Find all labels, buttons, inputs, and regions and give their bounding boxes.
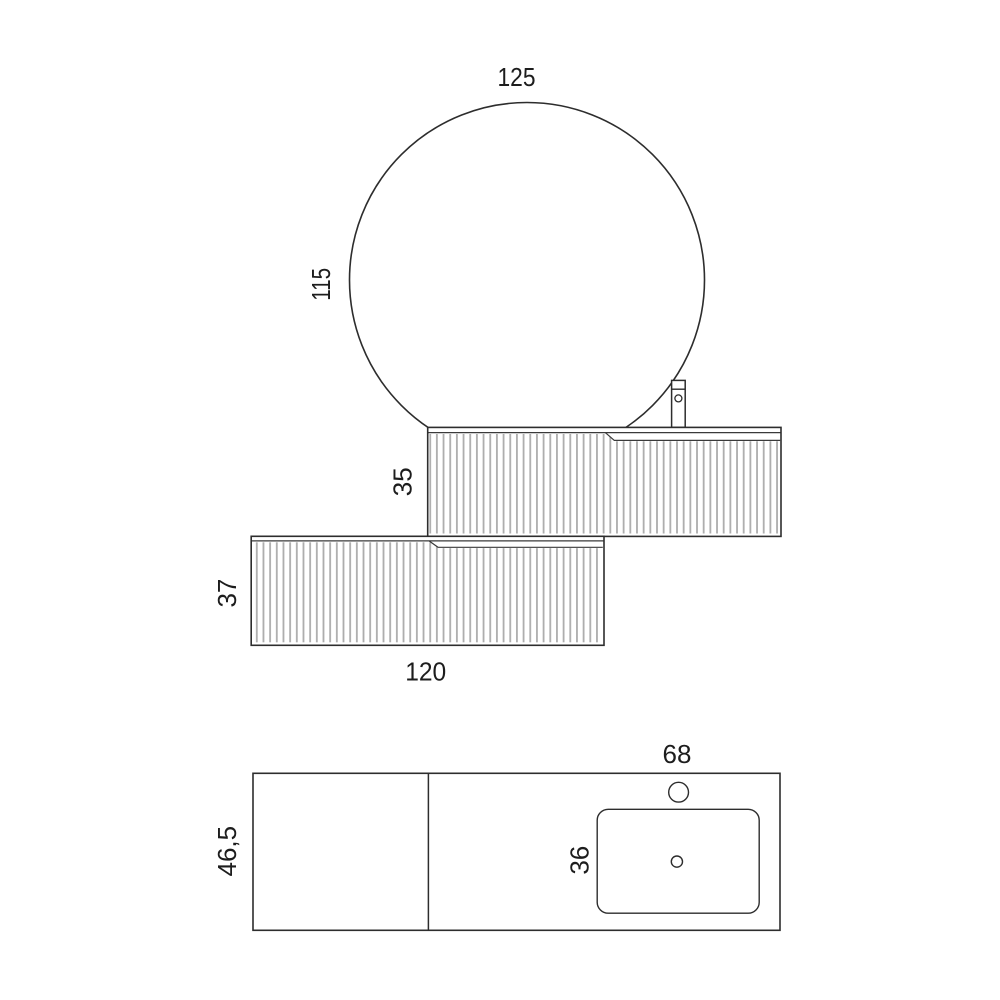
svg-text:36: 36 xyxy=(564,846,594,875)
svg-text:68: 68 xyxy=(663,739,692,769)
svg-text:37: 37 xyxy=(212,579,242,608)
svg-text:120: 120 xyxy=(405,656,446,686)
svg-text:115: 115 xyxy=(306,268,336,301)
svg-text:46,5: 46,5 xyxy=(212,826,242,877)
svg-text:35: 35 xyxy=(387,467,417,496)
svg-text:125: 125 xyxy=(498,62,536,92)
